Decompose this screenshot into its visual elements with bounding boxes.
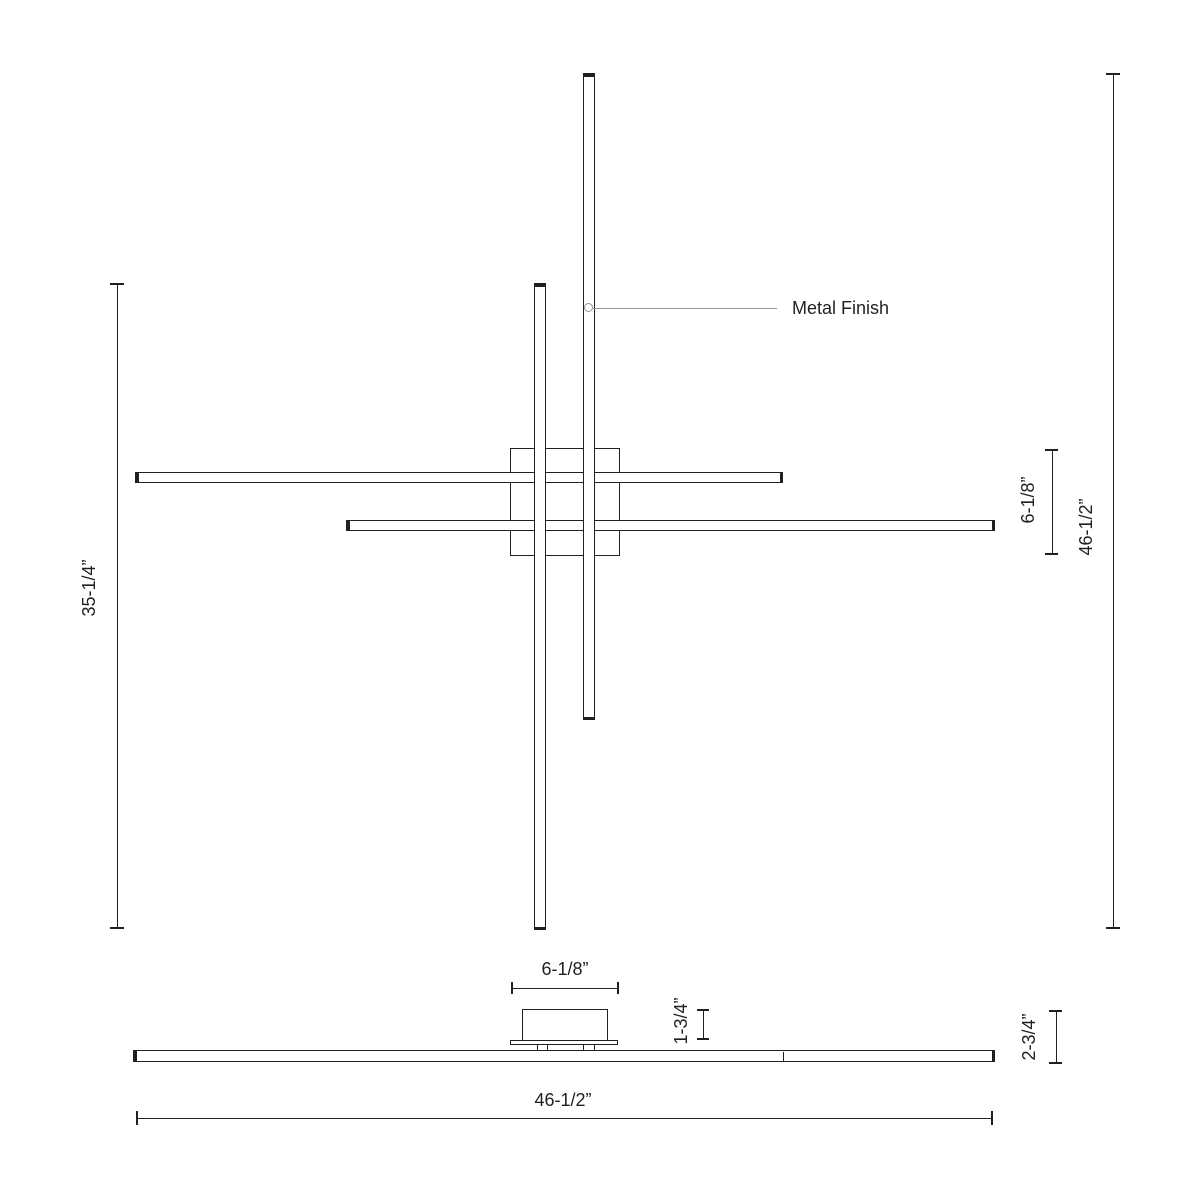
light-bar-right bbox=[346, 520, 995, 531]
bar-end-cap bbox=[584, 74, 594, 77]
leader-line bbox=[593, 308, 777, 309]
bar-end-cap bbox=[535, 927, 545, 930]
dimension-line bbox=[1052, 450, 1053, 555]
dimension-tick bbox=[136, 1111, 138, 1125]
bar-joint-line bbox=[783, 1052, 785, 1061]
dimension-line bbox=[117, 284, 118, 929]
dimension-line bbox=[512, 988, 618, 989]
dimension-line bbox=[1056, 1011, 1057, 1063]
spec-drawing: Metal Finish 35-1/4” 46-1/2” 6-1/8” bbox=[0, 0, 1200, 1200]
canopy-flange bbox=[510, 1040, 618, 1045]
bar-end-cap bbox=[992, 1051, 995, 1061]
canopy-elevation bbox=[522, 1009, 608, 1041]
bar-end-cap bbox=[535, 284, 545, 287]
dimension-label: 46-1/2” bbox=[1077, 498, 1095, 555]
dimension-label: 6-1/8” bbox=[541, 960, 588, 978]
dimension-tick bbox=[697, 1009, 709, 1011]
dimension-tick bbox=[617, 982, 619, 994]
light-bar-left bbox=[135, 472, 783, 483]
dimension-tick bbox=[1045, 553, 1058, 555]
dimension-tick bbox=[697, 1038, 709, 1040]
dimension-tick bbox=[511, 982, 513, 994]
dimension-line bbox=[137, 1118, 993, 1119]
dimension-label: 35-1/4” bbox=[80, 559, 98, 616]
dimension-label: 46-1/2” bbox=[534, 1091, 591, 1109]
metal-finish-label: Metal Finish bbox=[792, 299, 889, 317]
dimension-label: 6-1/8” bbox=[1019, 476, 1037, 523]
dimension-tick bbox=[1106, 73, 1120, 75]
bar-end-cap bbox=[584, 717, 594, 720]
dimension-label: 1-3/4” bbox=[672, 997, 690, 1044]
dimension-line bbox=[703, 1010, 704, 1039]
leader-circle-icon bbox=[584, 303, 593, 312]
bar-end-cap bbox=[136, 473, 139, 482]
bar-end-cap bbox=[992, 521, 995, 530]
fixture-profile-bar bbox=[133, 1050, 995, 1062]
dimension-tick bbox=[991, 1111, 993, 1125]
dimension-tick bbox=[110, 283, 124, 285]
dimension-tick bbox=[110, 927, 124, 929]
light-bar-down bbox=[534, 283, 546, 930]
dimension-tick bbox=[1049, 1062, 1062, 1064]
bar-end-cap bbox=[780, 473, 783, 482]
dimension-label: 2-3/4” bbox=[1020, 1013, 1038, 1060]
dimension-tick bbox=[1049, 1010, 1062, 1012]
dimension-line bbox=[1113, 74, 1114, 929]
canopy-plan bbox=[510, 448, 620, 556]
dimension-tick bbox=[1045, 449, 1058, 451]
light-bar-up bbox=[583, 73, 595, 720]
bar-end-cap bbox=[347, 521, 350, 530]
bar-end-cap bbox=[134, 1051, 137, 1061]
dimension-tick bbox=[1106, 927, 1120, 929]
